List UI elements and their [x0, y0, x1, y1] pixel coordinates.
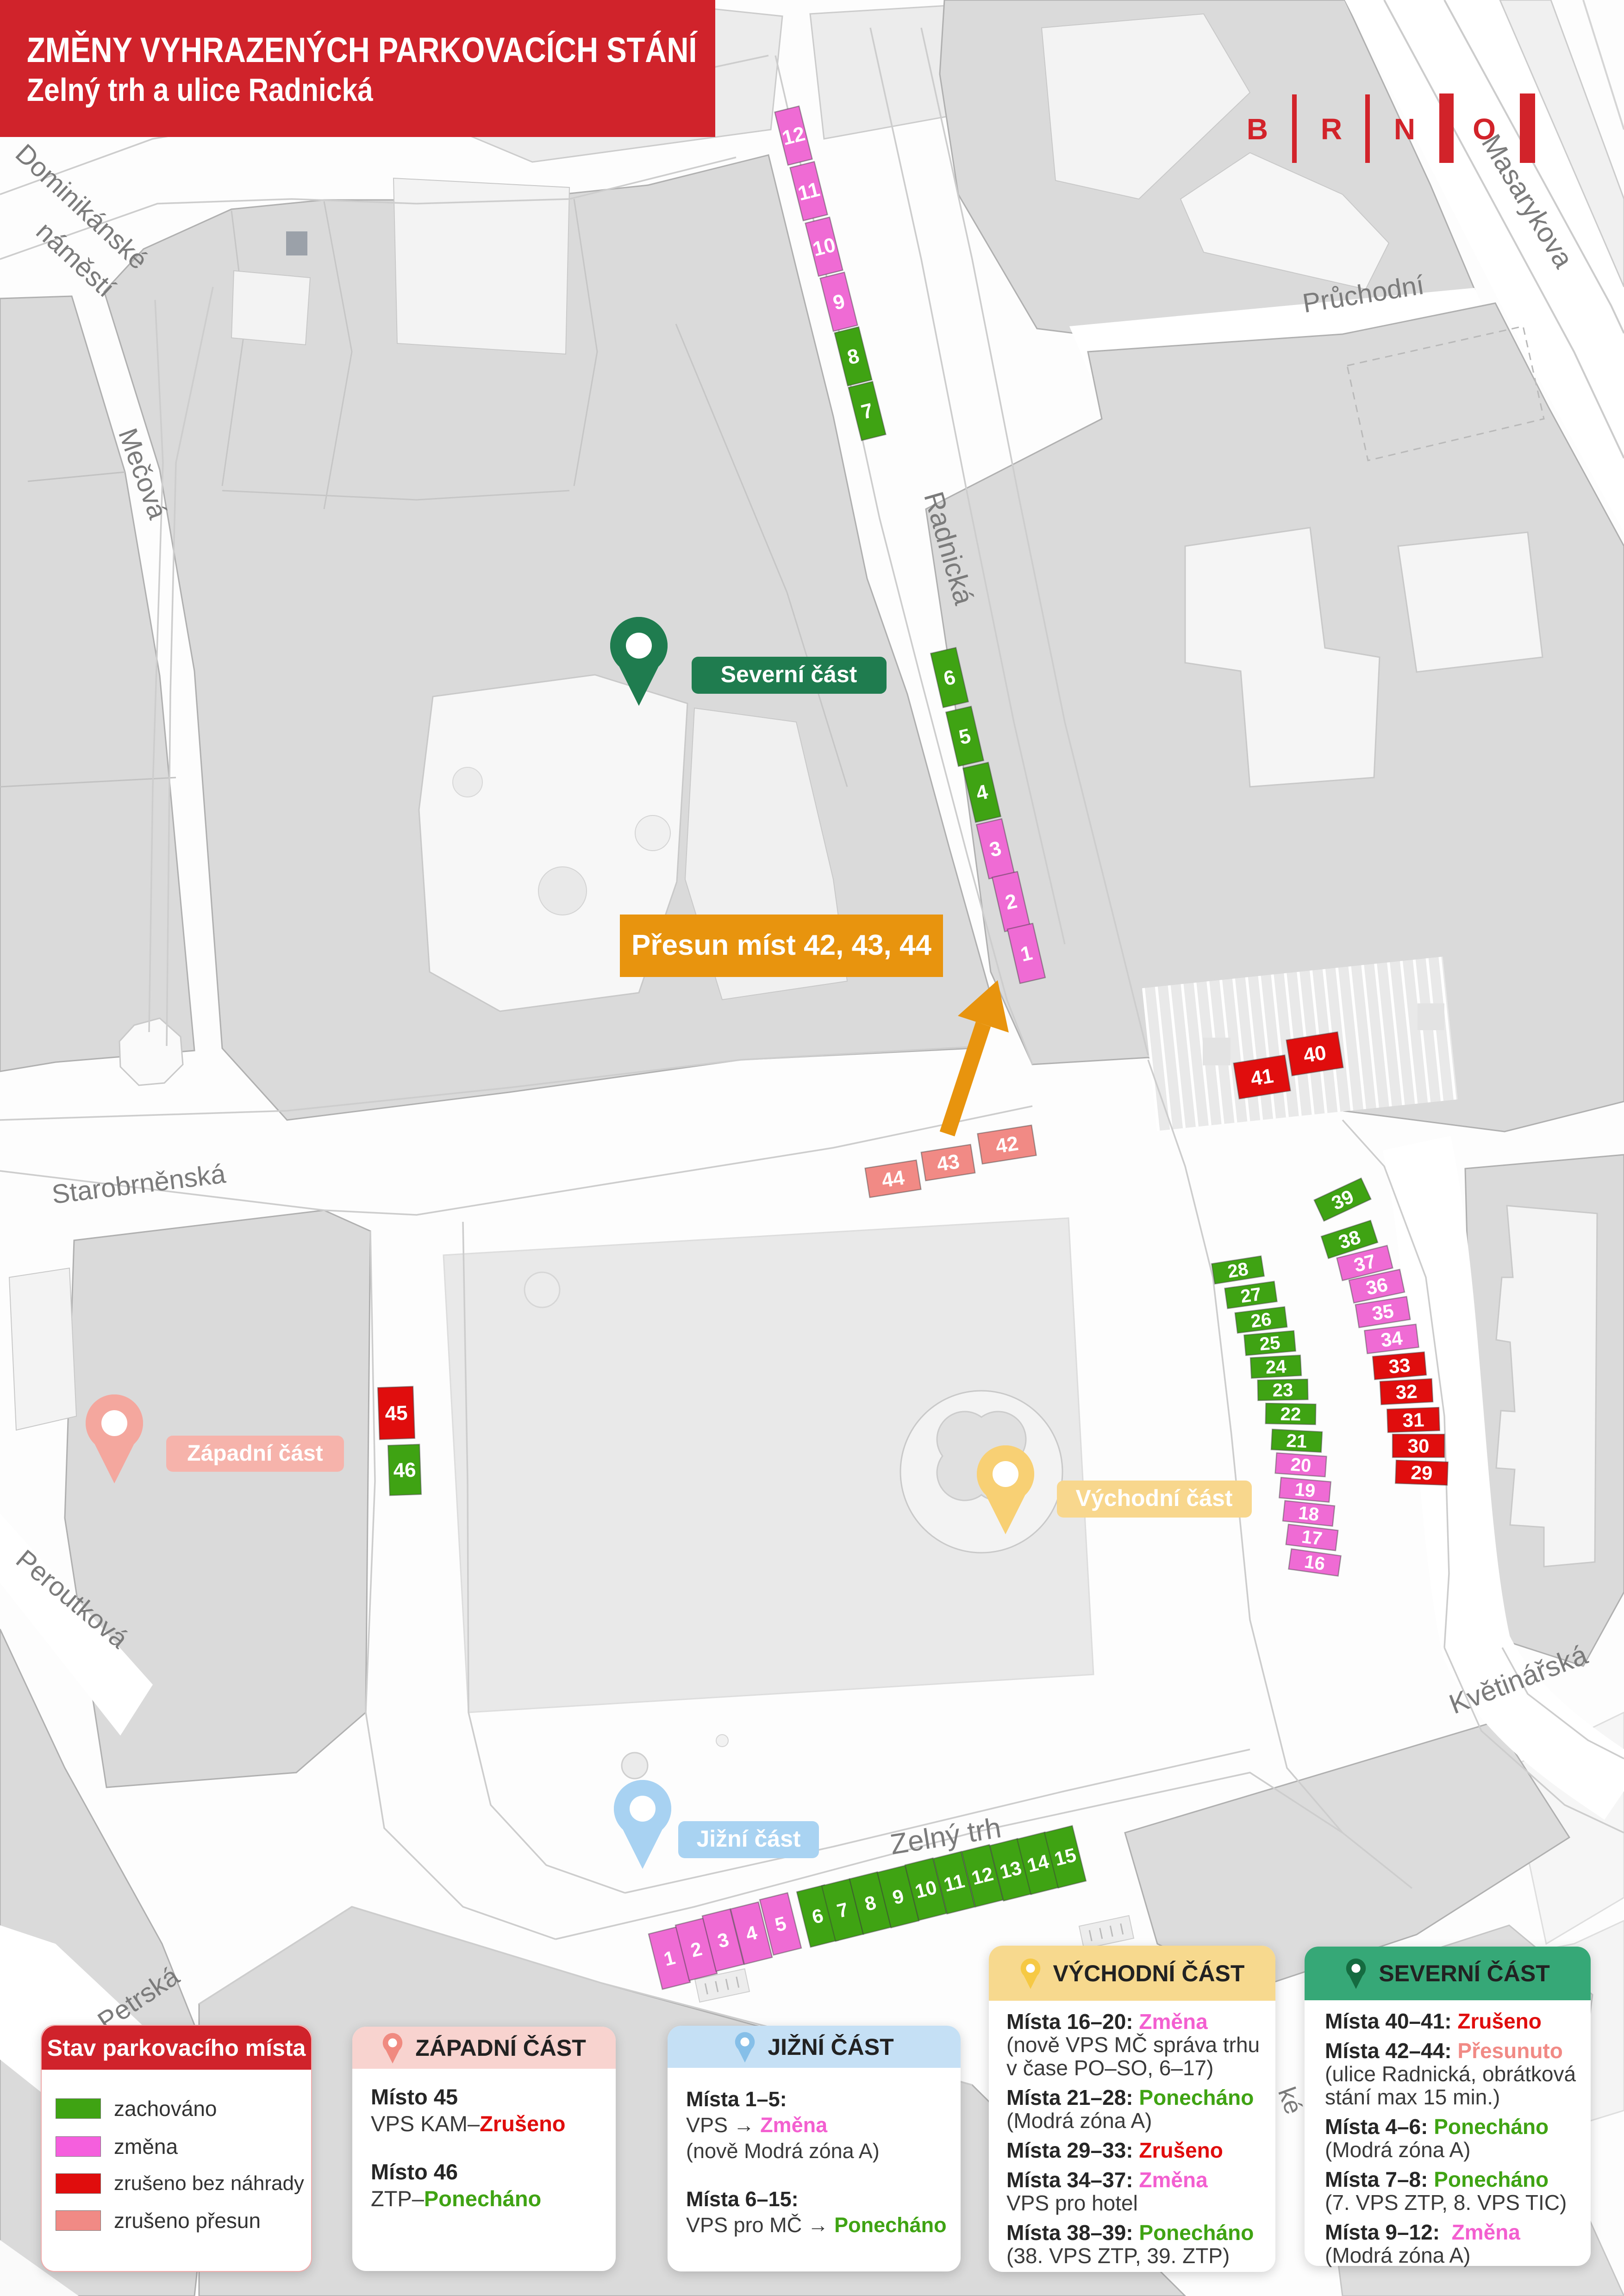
svg-text:O: O — [1473, 112, 1496, 146]
svg-text:31: 31 — [1402, 1409, 1424, 1431]
svg-text:42: 42 — [994, 1132, 1020, 1158]
svg-text:23: 23 — [1272, 1380, 1293, 1401]
svg-text:34: 34 — [1380, 1327, 1404, 1351]
svg-text:21: 21 — [1286, 1431, 1308, 1452]
svg-text:41: 41 — [1249, 1064, 1275, 1090]
svg-text:R: R — [1321, 112, 1342, 146]
svg-text:19: 19 — [1294, 1479, 1316, 1501]
svg-text:27: 27 — [1239, 1284, 1262, 1307]
svg-text:N: N — [1394, 112, 1415, 146]
svg-text:46: 46 — [393, 1459, 417, 1482]
svg-text:17: 17 — [1300, 1526, 1324, 1549]
svg-text:18: 18 — [1297, 1503, 1320, 1525]
svg-text:20: 20 — [1290, 1454, 1312, 1476]
svg-text:Jižní část: Jižní část — [696, 1826, 800, 1852]
svg-text:35: 35 — [1370, 1300, 1395, 1325]
svg-text:24: 24 — [1265, 1356, 1287, 1378]
svg-text:32: 32 — [1395, 1381, 1418, 1403]
svg-text:Západní část: Západní část — [187, 1441, 323, 1466]
svg-text:Přesun míst 42, 43, 44: Přesun míst 42, 43, 44 — [631, 929, 931, 961]
svg-text:26: 26 — [1249, 1309, 1273, 1332]
svg-text:22: 22 — [1280, 1404, 1301, 1425]
svg-text:B: B — [1247, 112, 1268, 146]
svg-text:28: 28 — [1226, 1259, 1250, 1282]
svg-text:43: 43 — [935, 1150, 961, 1176]
svg-text:25: 25 — [1259, 1332, 1281, 1355]
svg-text:36: 36 — [1364, 1273, 1389, 1299]
svg-text:30: 30 — [1408, 1435, 1430, 1457]
svg-text:44: 44 — [880, 1166, 906, 1192]
svg-text:40: 40 — [1302, 1041, 1328, 1067]
svg-text:29: 29 — [1411, 1462, 1433, 1484]
svg-text:33: 33 — [1388, 1354, 1412, 1378]
svg-text:45: 45 — [385, 1402, 408, 1425]
svg-text:Východní část: Východní část — [1076, 1485, 1233, 1511]
svg-text:16: 16 — [1303, 1551, 1326, 1574]
svg-text:Severní část: Severní část — [721, 661, 857, 687]
